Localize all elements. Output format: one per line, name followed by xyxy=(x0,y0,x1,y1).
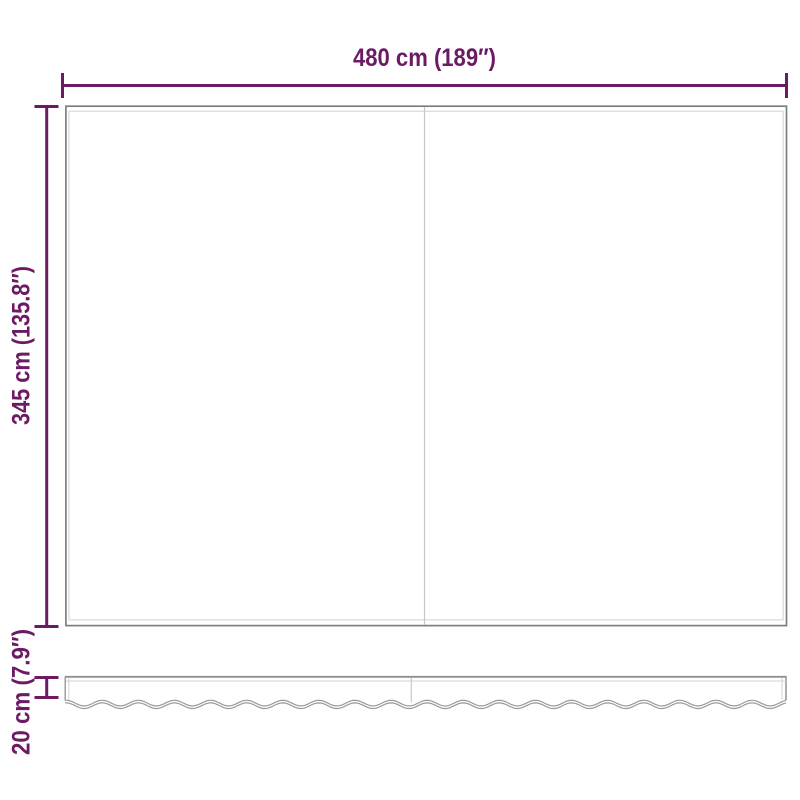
svg-text:480 cm (189″): 480 cm (189″) xyxy=(353,44,496,72)
svg-text:20 cm (7.9″): 20 cm (7.9″) xyxy=(8,629,36,755)
svg-text:345 cm (135.8″): 345 cm (135.8″) xyxy=(8,266,36,425)
